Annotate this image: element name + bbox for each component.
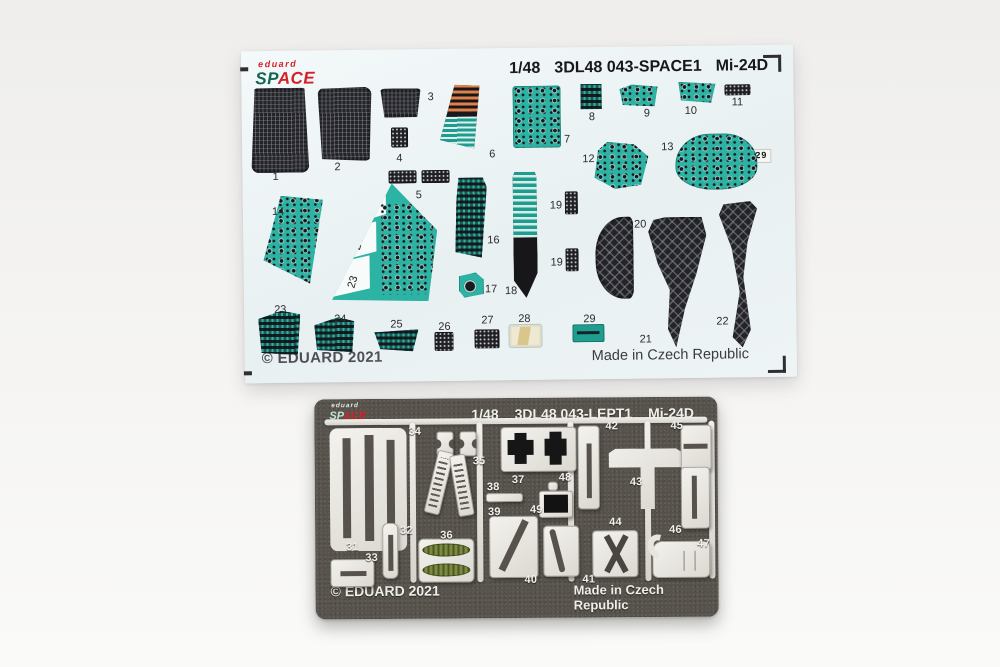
part-number: 31 xyxy=(346,541,359,553)
registration-mark xyxy=(244,371,252,375)
origin-text: Made in Czech Republic xyxy=(574,582,719,613)
part-number: 10 xyxy=(685,105,697,117)
part-number: 40 xyxy=(524,574,537,586)
registration-mark xyxy=(768,356,786,373)
part-number: 20 xyxy=(634,218,646,230)
part-number: 4 xyxy=(396,152,402,164)
part-number: 38 xyxy=(487,481,500,493)
decal-part-13 xyxy=(675,133,758,190)
decal-part-10 xyxy=(678,82,715,103)
part-number: 18 xyxy=(505,285,517,297)
part-number: 23 xyxy=(274,304,286,316)
part-number: 2 xyxy=(334,161,340,173)
part-number: 42 xyxy=(605,420,618,432)
part-number: 36 xyxy=(440,529,453,541)
part-number: 28 xyxy=(518,313,530,325)
decal-sheet: eduard SPACE 1/48 3DL48 043-SPACE1 Mi-24… xyxy=(241,45,797,384)
decal-part-19 xyxy=(565,191,578,214)
part-number: 12 xyxy=(582,153,594,165)
part-number: 27 xyxy=(481,314,493,326)
etch-part-44 xyxy=(592,530,638,577)
part-number: 11 xyxy=(732,96,744,108)
decal-part-3 xyxy=(379,88,421,118)
part-number: 5 xyxy=(416,189,422,201)
etch-part-32 xyxy=(382,523,398,579)
origin-text: Made in Czech Republic xyxy=(592,346,749,364)
decal-part-25 xyxy=(374,329,418,352)
decal-part-16 xyxy=(455,177,488,257)
decal-part-8 xyxy=(580,84,601,109)
photo-stage: eduard SPACE 1/48 3DL48 043-SPACE1 Mi-24… xyxy=(0,0,1000,667)
etch-part-38 xyxy=(486,493,523,502)
part-number: 43 xyxy=(630,476,643,488)
part-number: 6 xyxy=(489,148,495,160)
section-number: 25 xyxy=(359,198,374,213)
etch-part-piece xyxy=(409,423,416,583)
aircraft-name: Mi-24D xyxy=(716,57,769,76)
part-number: 19 xyxy=(551,256,563,268)
part-number: 48 xyxy=(559,472,572,484)
decal-part-19 xyxy=(565,248,578,271)
part-number: 29 xyxy=(583,313,595,325)
part-number: 39 xyxy=(488,506,501,518)
part-number: 21 xyxy=(639,333,651,345)
decal-part-11 xyxy=(724,84,750,95)
etch-part-41 xyxy=(543,526,579,577)
decal-part-9 xyxy=(619,84,657,106)
part-number: 35 xyxy=(473,455,486,467)
etch-part-42 xyxy=(577,425,600,509)
decal-part-12 xyxy=(594,141,649,189)
registration-mark xyxy=(240,67,248,71)
part-number: 32 xyxy=(400,525,413,537)
part-number: 34 xyxy=(408,426,421,438)
part-number: 45 xyxy=(670,420,683,432)
etch-part-piece xyxy=(449,453,475,517)
etch-part-37 xyxy=(500,427,576,473)
decal-part-17 xyxy=(459,272,484,297)
part-number: 9 xyxy=(644,107,650,119)
part-number: 25 xyxy=(390,318,402,330)
decal-part-21 xyxy=(648,217,708,348)
etch-part-46 xyxy=(681,467,710,529)
part-number: 47 xyxy=(697,538,710,550)
product-line: SPACE xyxy=(255,69,315,87)
etch-part-48 xyxy=(548,482,558,491)
etch-part-36 xyxy=(418,538,474,582)
decal-part-1 xyxy=(250,88,309,174)
wing-section xyxy=(353,187,385,224)
decal-part-28 xyxy=(509,325,541,347)
etch-part-piece xyxy=(476,422,483,582)
part-number: 13 xyxy=(661,141,673,153)
part-number: 17 xyxy=(485,283,497,295)
part-number: 14 xyxy=(272,206,284,218)
etch-part-39 xyxy=(489,516,538,578)
decal-part-6 xyxy=(439,84,480,148)
decal-part-18 xyxy=(512,172,538,298)
part-number: 19 xyxy=(550,199,562,211)
eduard-space-logo: eduard SPACE xyxy=(255,59,315,87)
part-number: 16 xyxy=(487,234,499,246)
etch-part-45 xyxy=(680,425,711,471)
decal-part-2 xyxy=(317,87,372,162)
wing-section xyxy=(341,222,377,261)
scale-label: 1/48 xyxy=(509,60,540,78)
decal-part-27 xyxy=(474,329,499,348)
part-number: 7 xyxy=(564,133,570,145)
decal-part-29 xyxy=(572,324,604,342)
etch-part-49 xyxy=(539,491,573,518)
decal-part-piece xyxy=(421,170,449,183)
etch-part-piece xyxy=(459,431,476,456)
part-number: 49 xyxy=(530,504,543,516)
decal-part-23 xyxy=(258,311,301,356)
part-number: 33 xyxy=(365,552,378,564)
part-number: 44 xyxy=(609,516,622,528)
photo-etch-sheet: eduard SPACE 1/48 3DL48 043-LEPT1 Mi-24D… xyxy=(314,397,719,620)
decal-part-20 xyxy=(595,217,634,299)
part-number: 8 xyxy=(589,111,595,123)
part-number: 3 xyxy=(427,91,433,103)
decal-part-4 xyxy=(391,127,408,147)
sheet-header: 1/48 3DL48 043-SPACE1 Mi-24D xyxy=(509,57,768,78)
part-number: 24 xyxy=(334,313,346,325)
part-number: 22 xyxy=(716,315,728,327)
part-number: 37 xyxy=(512,474,525,486)
decal-part-26 xyxy=(434,332,453,351)
part-number: 46 xyxy=(669,524,682,536)
decal-part-5 xyxy=(388,170,416,183)
decal-part-7 xyxy=(512,85,561,148)
part-number: 1 xyxy=(272,171,278,183)
product-code: 3DL48 043-SPACE1 xyxy=(554,58,702,78)
part-number: 26 xyxy=(438,321,450,333)
